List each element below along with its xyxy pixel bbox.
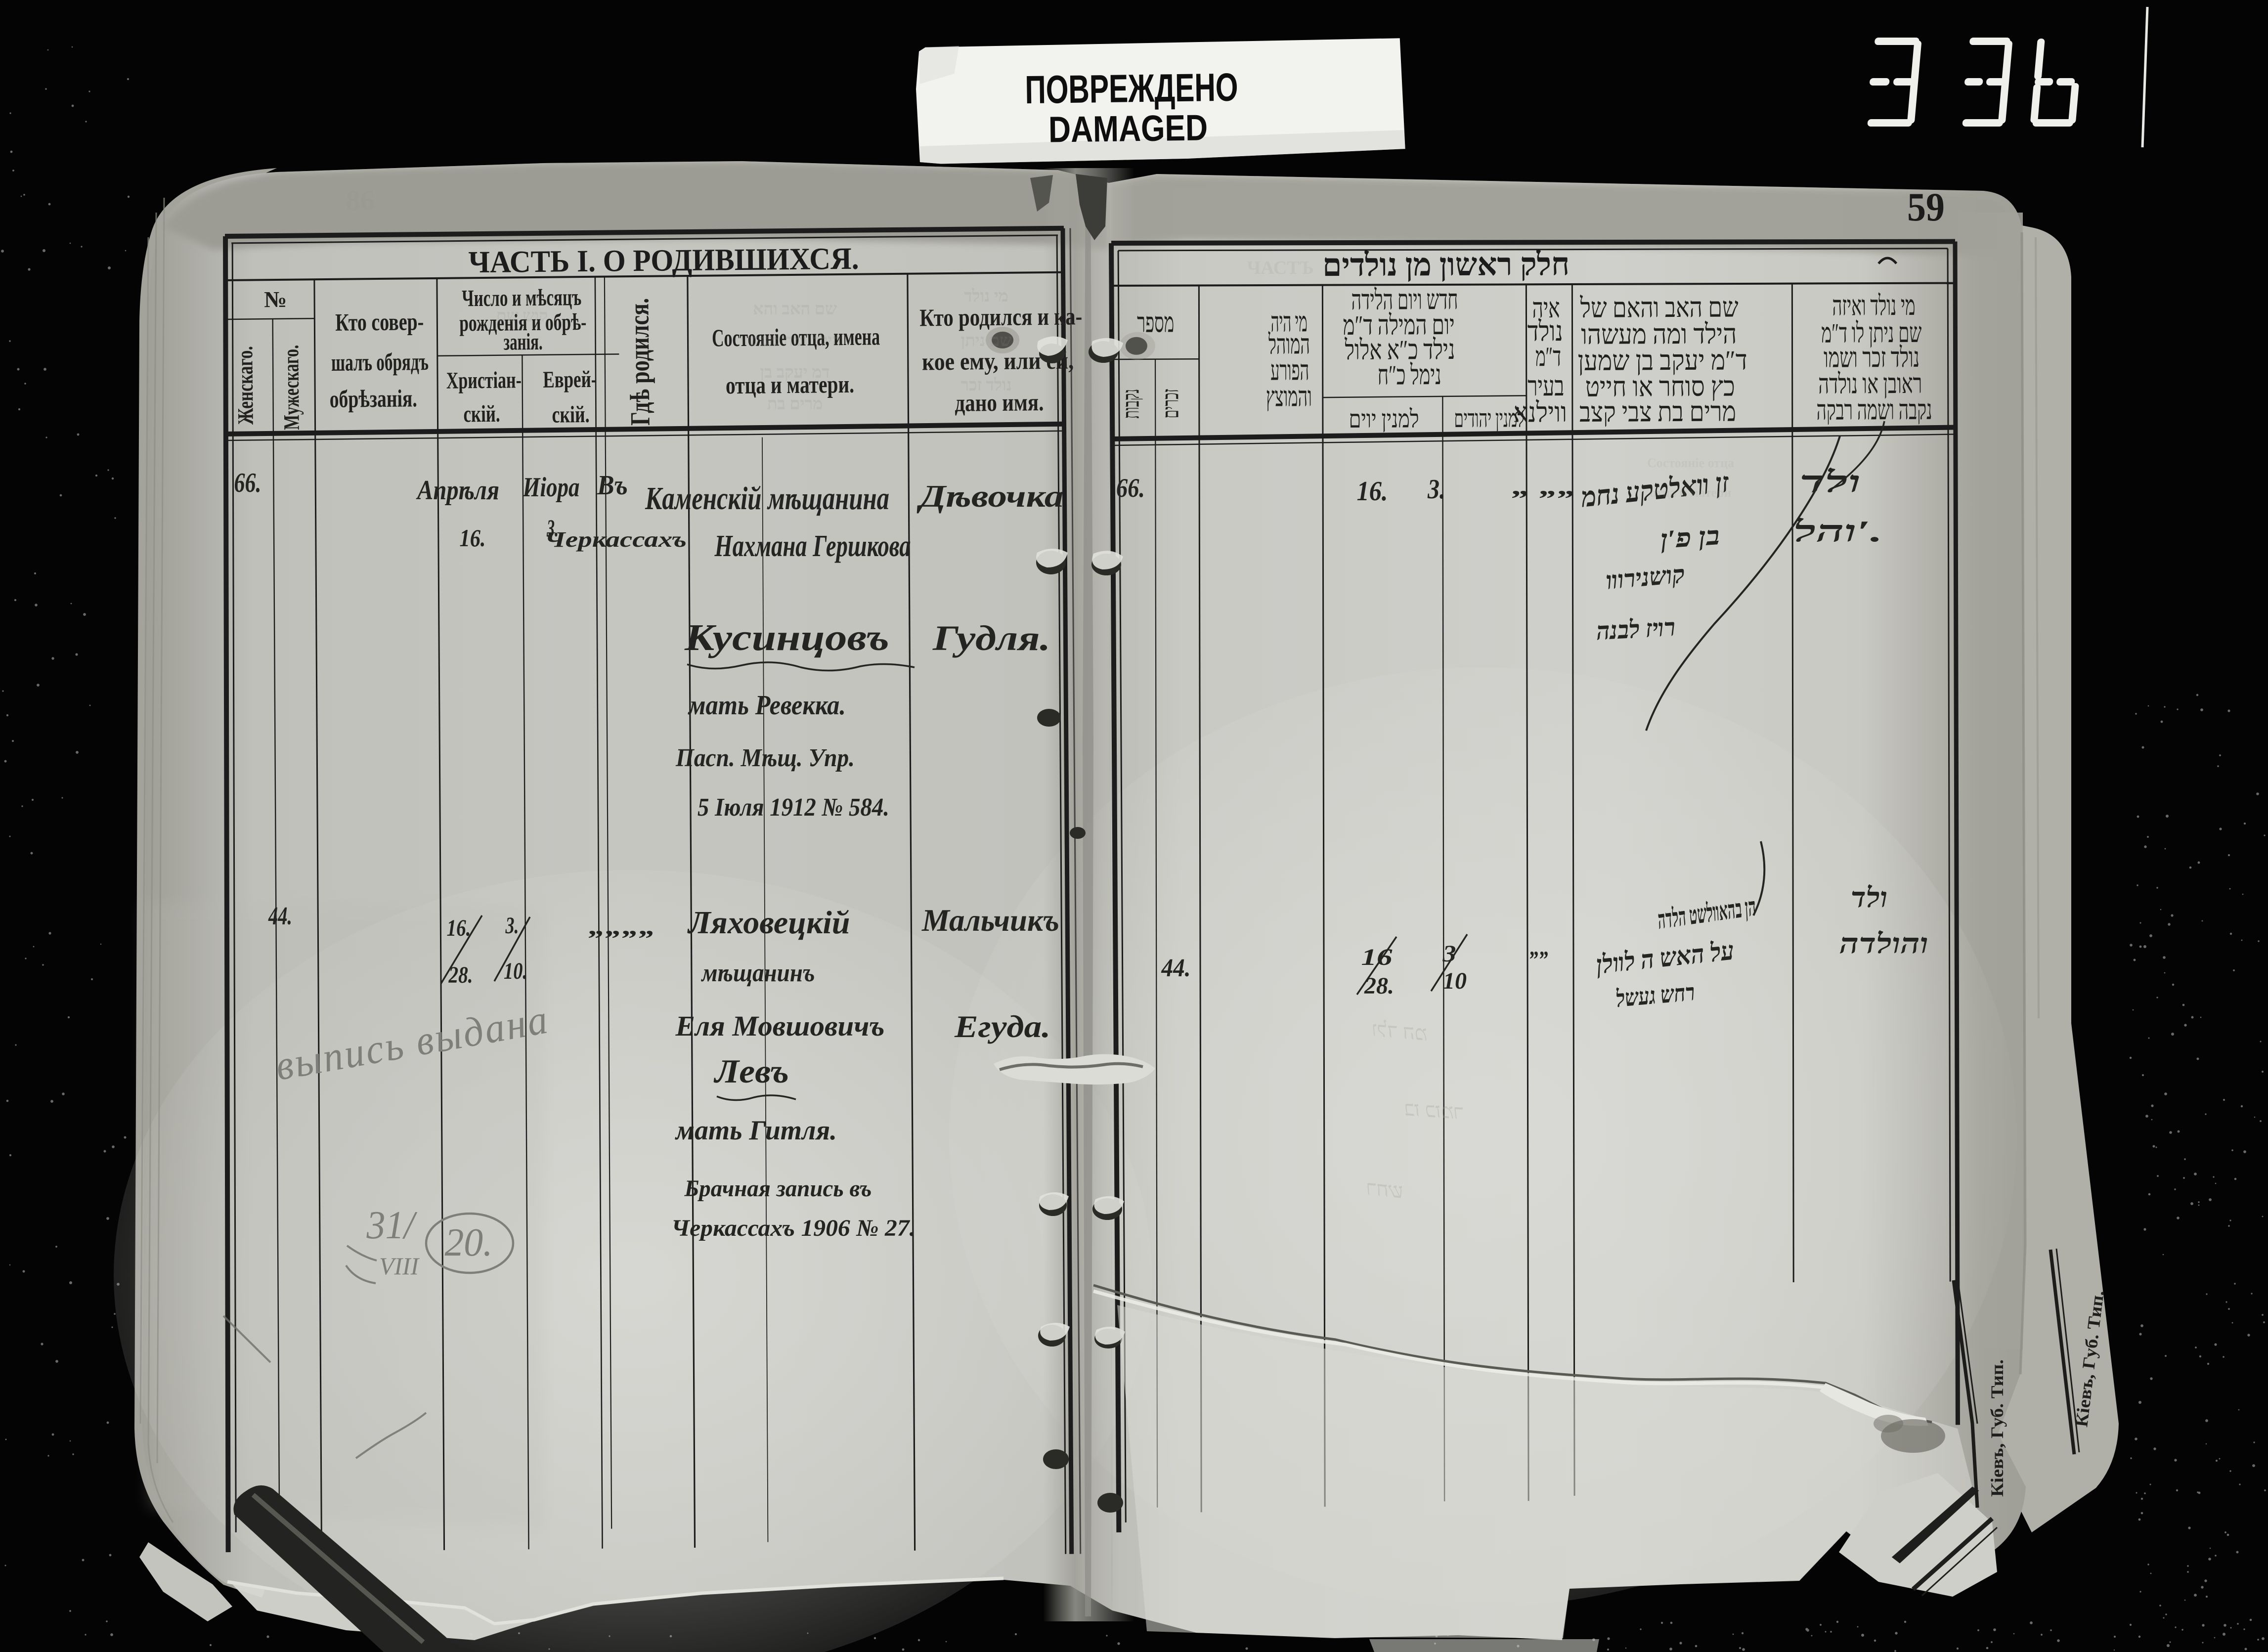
svg-text:Егуда.: Егуда. [954, 1009, 1050, 1044]
svg-text:Дѣвочка: Дѣвочка [916, 478, 1063, 514]
svg-text:3.: 3. [1427, 474, 1445, 505]
svg-text:обрѣзанія.: обрѣзанія. [329, 384, 417, 413]
svg-text:ПОВРЕЖДЕНО: ПОВРЕЖДЕНО [1025, 65, 1238, 112]
svg-text:נקבה ושמה רבקה: נקבה ושמה רבקה [1816, 395, 1932, 426]
svg-text:שם האב והא: שם האב והא [753, 300, 837, 318]
svg-text:רױז לבנה: רױז לבנה [1596, 613, 1676, 645]
svg-text:Кіевъ, Губ. Тип.: Кіевъ, Губ. Тип. [1987, 1359, 2007, 1497]
svg-text:скій.: скій. [463, 401, 500, 428]
svg-text:66.: 66. [234, 468, 262, 498]
svg-text:Каменскій мѣщанина: Каменскій мѣщанина [645, 480, 889, 517]
svg-text:והמוצץ: והמוצץ [1266, 382, 1312, 412]
svg-text:16.: 16. [460, 524, 486, 552]
svg-text:скій.: скій. [552, 401, 590, 428]
svg-text:шалъ обрядъ: шалъ обрядъ [331, 348, 429, 376]
svg-text:שם ניתן: שם ניתן [960, 332, 1011, 350]
svg-text:מי נולד ואיזה: מי נולד ואיזה [1832, 291, 1915, 322]
svg-text:רחש: רחש [1365, 1176, 1405, 1203]
svg-text:мѣщанинъ: мѣщанинъ [701, 959, 815, 987]
svg-text:נולד זכר: נולד זכר [960, 376, 1011, 394]
svg-text:Кусинцовъ: Кусинцовъ [684, 617, 889, 658]
svg-text:31/: 31/ [366, 1204, 418, 1247]
svg-text:ЧАСТЬ I. О РОДИВШИХСЯ.: ЧАСТЬ I. О РОДИВШИХСЯ. [468, 241, 859, 280]
svg-text:86: 86 [346, 184, 375, 217]
svg-text:Пасп. Мѣщ. Упр.: Пасп. Мѣщ. Упр. [675, 744, 855, 772]
svg-text:Черкассахъ 1906 № 27.: Черкассахъ 1906 № 27. [671, 1215, 916, 1241]
svg-text:„ „„: „ „„ [1512, 474, 1576, 500]
svg-text:ЧАСТЪ: ЧАСТЪ [1247, 258, 1313, 278]
svg-text:3.: 3. [505, 913, 519, 939]
svg-text:Ляховецкій: Ляховецкій [687, 905, 850, 941]
svg-text:44.: 44. [268, 902, 292, 930]
svg-text:мать Ревекка.: мать Ревекка. [688, 690, 846, 721]
svg-text:נימל כ″ח: נימל כ″ח [1378, 360, 1441, 391]
svg-text:66.: 66. [1116, 473, 1145, 503]
svg-text:Гудля.: Гудля. [932, 618, 1050, 658]
svg-text:Еля Мовшовичъ: Еля Мовшовичъ [675, 1010, 884, 1042]
svg-text:והל′.: והל′. [1793, 515, 1882, 548]
svg-text:VIII: VIII [379, 1252, 420, 1280]
svg-text:Иіора: Иіора [523, 472, 580, 503]
svg-text:Еврей-: Еврей- [543, 366, 597, 393]
svg-text:והולדה: והולדה [1839, 929, 1928, 959]
svg-text:5 Іюля 1912 № 584.: 5 Іюля 1912 № 584. [698, 793, 889, 822]
svg-text:הילד ומה מעש: הילד ומה מעש [748, 332, 842, 350]
svg-text:16.: 16. [1357, 476, 1388, 507]
svg-text:44.: 44. [1161, 954, 1191, 982]
svg-text:10: 10 [1443, 968, 1467, 994]
svg-text:„„„„: „„„„ [589, 913, 656, 940]
svg-text:Нахмана Гершкова: Нахмана Гершкова [714, 529, 911, 563]
svg-text:отца и матери: отца и матери [1650, 485, 1731, 500]
svg-text:Состояніе отца: Состояніе отца [1647, 456, 1734, 470]
svg-text:מי נולד: מי נולד [964, 287, 1008, 305]
svg-text:Левъ: Левъ [713, 1052, 789, 1090]
svg-text:Апрѣля: Апрѣля [416, 475, 499, 506]
svg-text:№: № [264, 287, 287, 312]
svg-text:ולד המ: ולד המ [1371, 1018, 1428, 1045]
svg-text:59: 59 [1907, 184, 1945, 229]
svg-text:Черкассахъ: Черкассахъ [544, 527, 687, 552]
svg-text:Мальчикъ: Мальчикъ [921, 903, 1059, 938]
svg-text:Гдѣ родился.: Гдѣ родился. [624, 298, 655, 426]
svg-text:16.: 16. [447, 915, 471, 941]
svg-text:20.: 20. [445, 1221, 493, 1264]
svg-text:למנין יוים: למנין יוים [1349, 405, 1419, 433]
svg-text:Кто совер-: Кто совер- [335, 307, 424, 336]
svg-text:בן פ′ן: בן פ′ן [1659, 522, 1721, 554]
svg-text:ולד: ולד [1851, 883, 1888, 913]
svg-text:Христіан-: Христіан- [446, 367, 522, 393]
svg-text:„„: „„ [1530, 934, 1550, 960]
svg-text:Женскаго.: Женскаго. [232, 346, 258, 425]
svg-text:קוש שם: קוש שם [496, 307, 548, 325]
svg-text:מרים בת צבי קצב: מרים בת צבי קצב [1579, 396, 1736, 428]
svg-text:נקבות: נקבות [1118, 389, 1143, 419]
svg-text:חלק ראשון מן נולדים: חלק ראשון מן נולדים [1322, 247, 1570, 283]
svg-text:Мужескаго.: Мужескаго. [278, 345, 304, 430]
svg-text:ולד: ולד [1799, 466, 1861, 498]
svg-text:занія.: занія. [503, 329, 543, 355]
svg-text:ווילנא: ווילנא [1513, 397, 1567, 428]
svg-text:זכרים: זכרים [1158, 389, 1183, 418]
svg-text:Брачная запись въ: Брачная запись въ [684, 1175, 872, 1202]
svg-text:בז כזמר: בז כזמר [1403, 1097, 1464, 1124]
svg-text:10.: 10. [504, 958, 527, 984]
svg-text:ד″מ: ד″מ [1535, 342, 1561, 372]
svg-text:דמ יעקב בן: דמ יעקב בן [760, 363, 829, 382]
svg-text:מרים בת: מרים בת [767, 395, 823, 413]
svg-text:Въ: Въ [597, 470, 628, 501]
svg-text:DAMAGED: DAMAGED [1048, 107, 1208, 150]
svg-text:мать Гитля.: мать Гитля. [675, 1115, 837, 1146]
